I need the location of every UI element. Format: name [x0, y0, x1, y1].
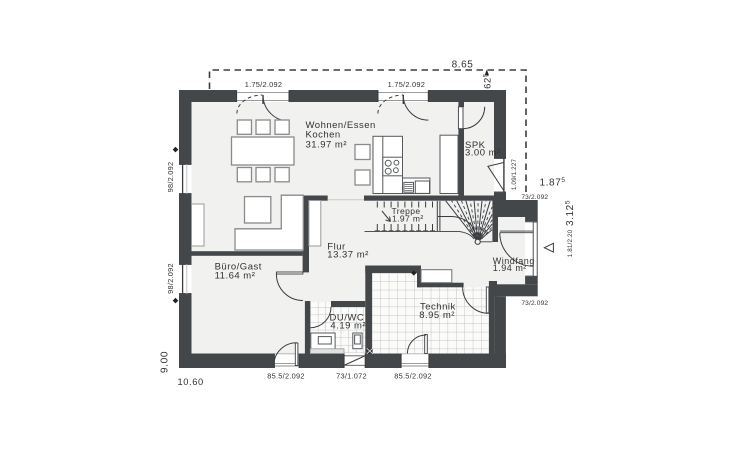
svg-text:8.65: 8.65 — [452, 60, 474, 71]
svg-text:8.95 m²: 8.95 m² — [419, 310, 455, 321]
svg-text:3.00 m²: 3.00 m² — [465, 147, 501, 158]
svg-text:73/2.092: 73/2.092 — [521, 194, 548, 201]
svg-text:73/2.092: 73/2.092 — [521, 300, 548, 307]
svg-text:1.94 m²: 1.94 m² — [493, 263, 527, 273]
svg-text:10.60: 10.60 — [178, 377, 204, 387]
svg-text:13.37 m²: 13.37 m² — [327, 249, 369, 260]
svg-text:1.75/2.092: 1.75/2.092 — [245, 80, 282, 89]
svg-text:1.81/2.20: 1.81/2.20 — [567, 229, 574, 257]
svg-text:85.5/2.092: 85.5/2.092 — [267, 371, 304, 380]
svg-text:1.97 m²: 1.97 m² — [392, 213, 424, 223]
svg-text:11.64 m²: 11.64 m² — [215, 271, 256, 282]
svg-text:31.97 m²: 31.97 m² — [306, 139, 348, 150]
svg-text:73/1.072: 73/1.072 — [336, 371, 367, 380]
svg-text:1.09/1.227: 1.09/1.227 — [511, 159, 518, 191]
svg-text:98/2.092: 98/2.092 — [166, 162, 175, 193]
svg-text:1.75/2.092: 1.75/2.092 — [388, 80, 425, 89]
svg-text:98/2.092: 98/2.092 — [166, 263, 175, 294]
svg-text:4.19 m²: 4.19 m² — [330, 321, 366, 332]
svg-text:85.5/2.092: 85.5/2.092 — [394, 371, 431, 380]
svg-text:9.00: 9.00 — [159, 351, 170, 373]
